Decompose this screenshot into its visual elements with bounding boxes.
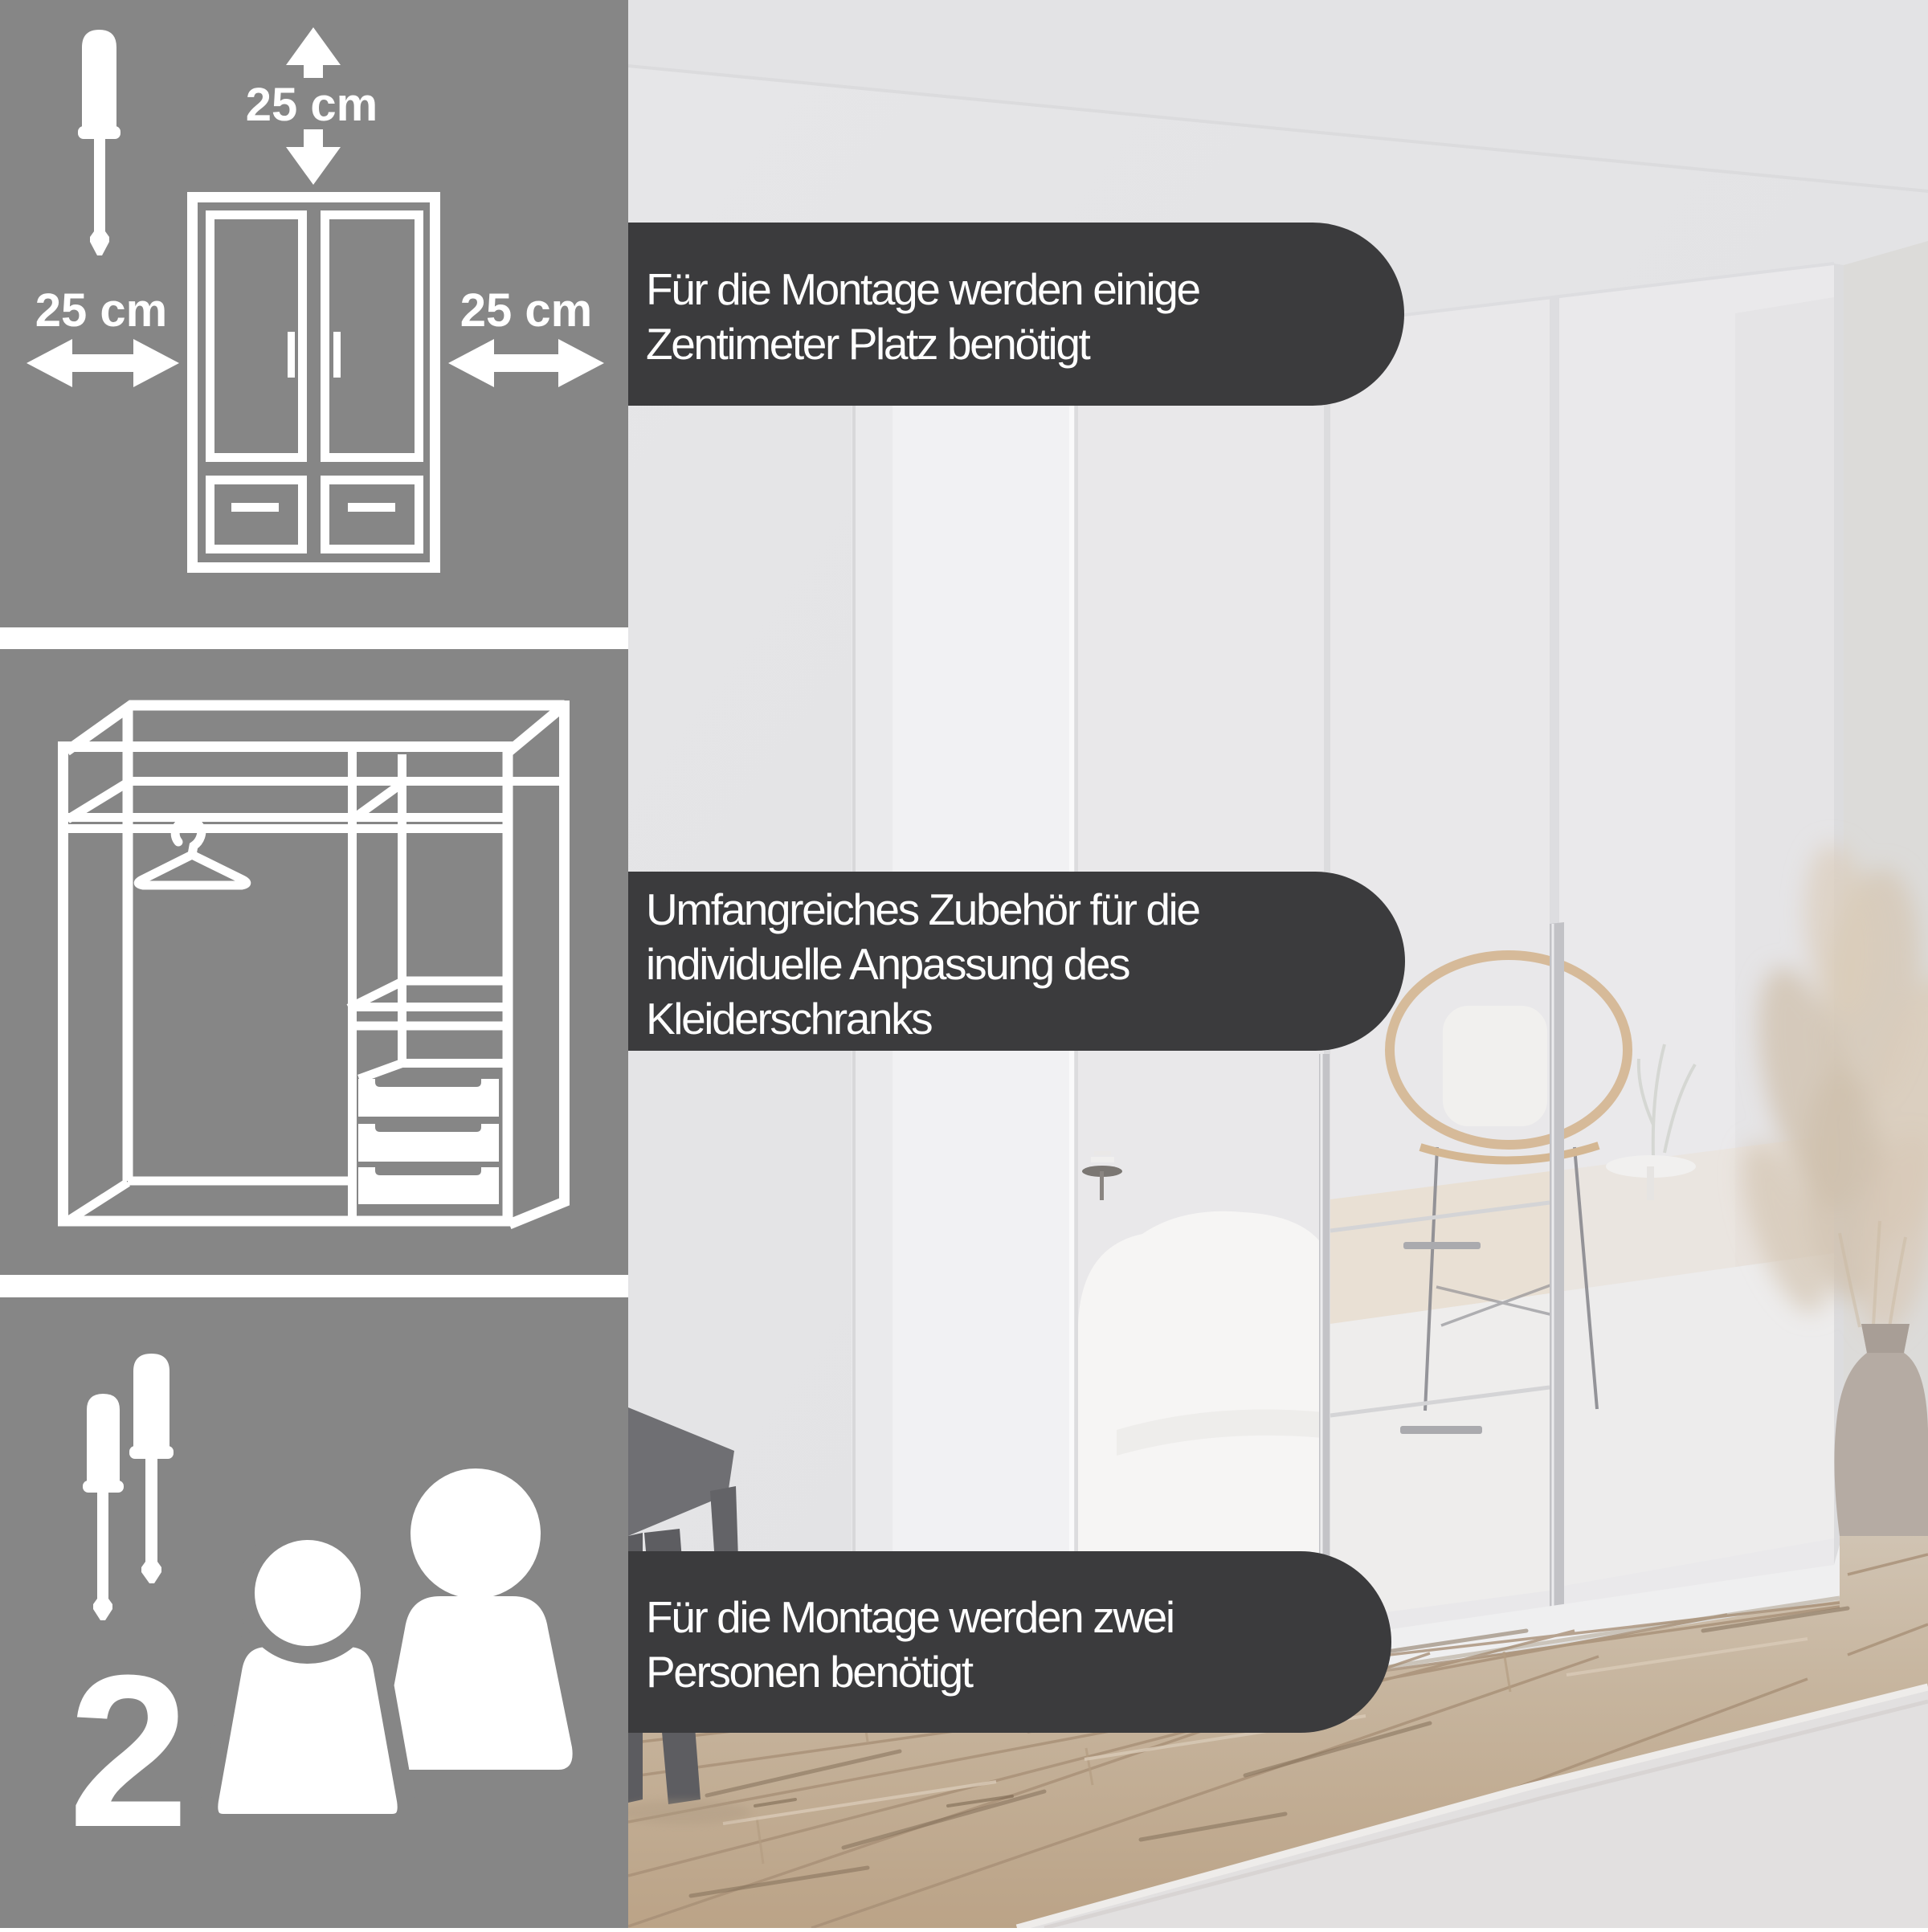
svg-text:25 cm: 25 cm xyxy=(460,284,592,337)
svg-text:25 cm: 25 cm xyxy=(246,79,378,131)
svg-text:25 cm: 25 cm xyxy=(35,284,167,337)
svg-text:2: 2 xyxy=(68,1631,189,1873)
